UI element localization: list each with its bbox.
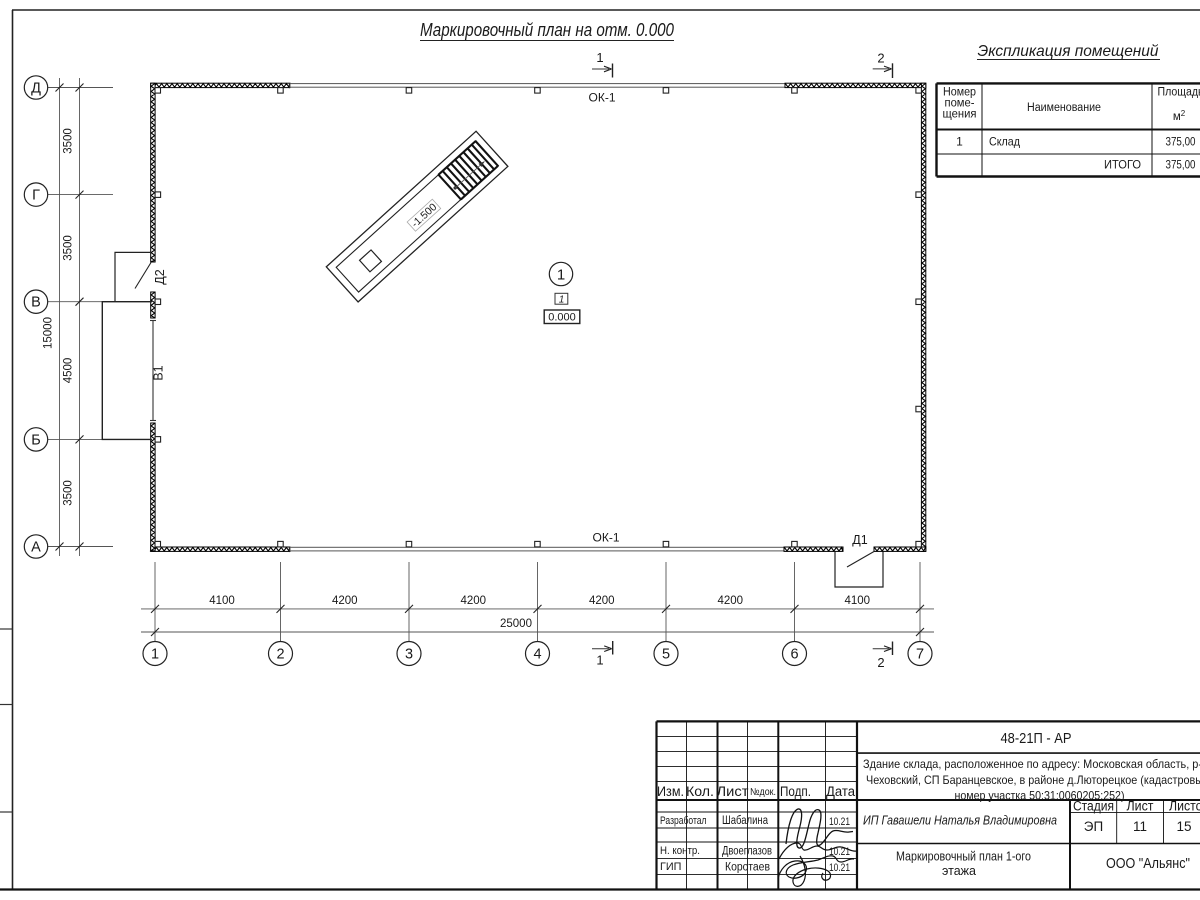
svg-text:1: 1 (956, 135, 963, 149)
svg-text:3500: 3500 (63, 128, 75, 154)
svg-text:7: 7 (916, 647, 924, 663)
svg-text:ОК-1: ОК-1 (589, 91, 616, 105)
svg-text:Б: Б (31, 432, 41, 448)
svg-text:№док.: №док. (750, 787, 776, 798)
svg-text:Д2: Д2 (153, 269, 167, 284)
svg-text:Н. контр.: Н. контр. (660, 845, 700, 857)
svg-text:4: 4 (533, 647, 541, 663)
svg-text:Разработал: Разработал (660, 815, 707, 827)
svg-text:2: 2 (877, 51, 884, 66)
svg-text:5: 5 (662, 647, 670, 663)
svg-text:Маркировочный план на отм. 0.0: Маркировочный план на отм. 0.000 (420, 19, 675, 40)
svg-text:Здание склада, расположенное п: Здание склада, расположенное по адресу: … (863, 757, 1200, 771)
svg-text:Лист: Лист (717, 784, 749, 799)
svg-text:щения: щения (943, 109, 977, 121)
svg-text:375,00: 375,00 (1166, 135, 1196, 149)
svg-text:2: 2 (276, 647, 284, 663)
svg-text:Изм.: Изм. (657, 784, 684, 799)
svg-text:Листов: Листов (1169, 799, 1200, 814)
svg-text:0.000: 0.000 (548, 312, 576, 324)
svg-text:48-21П - АР: 48-21П - АР (1001, 731, 1072, 747)
svg-text:1: 1 (596, 50, 603, 65)
svg-text:Двоеглазов: Двоеглазов (722, 846, 772, 858)
svg-text:Стадия: Стадия (1073, 799, 1114, 814)
svg-text:Склад: Склад (989, 135, 1020, 149)
svg-text:Д1: Д1 (852, 533, 867, 547)
svg-text:В: В (31, 295, 41, 311)
svg-text:10.21: 10.21 (829, 816, 850, 828)
svg-text:В1: В1 (152, 365, 166, 380)
svg-text:Подп.: Подп. (780, 784, 811, 799)
svg-text:10.21: 10.21 (829, 862, 850, 874)
svg-text:4100: 4100 (845, 595, 871, 607)
svg-text:Д: Д (31, 81, 41, 97)
svg-text:Кол.: Кол. (686, 784, 714, 799)
svg-text:Лист: Лист (1127, 799, 1154, 814)
svg-text:4200: 4200 (461, 595, 487, 607)
svg-text:Маркировочный план 1-ого: Маркировочный план 1-ого (896, 850, 1031, 864)
svg-text:Шабалина: Шабалина (722, 815, 768, 827)
svg-text:6: 6 (790, 647, 798, 663)
svg-text:15000: 15000 (43, 317, 55, 349)
svg-text:3500: 3500 (63, 480, 75, 506)
svg-text:1: 1 (151, 647, 159, 663)
svg-text:Площадь: Площадь (1158, 87, 1200, 99)
svg-text:этажа: этажа (942, 864, 976, 878)
svg-text:А: А (31, 540, 41, 556)
svg-text:1: 1 (557, 267, 565, 284)
svg-text:4500: 4500 (63, 358, 75, 384)
svg-text:Чеховский, СП Баранцевское, в: Чеховский, СП Баранцевское, в районе д.Л… (866, 773, 1200, 787)
svg-text:4200: 4200 (332, 595, 358, 607)
svg-text:3500: 3500 (63, 235, 75, 261)
svg-text:Коротаев: Коротаев (725, 862, 770, 874)
svg-text:Г: Г (32, 188, 40, 204)
svg-text:11: 11 (1133, 819, 1147, 834)
svg-text:2: 2 (877, 655, 884, 670)
svg-text:15: 15 (1176, 819, 1191, 834)
svg-text:1: 1 (559, 294, 565, 305)
svg-text:Дата: Дата (826, 784, 855, 799)
svg-text:3: 3 (405, 647, 413, 663)
svg-text:Наименование: Наименование (1027, 102, 1101, 114)
svg-text:ЭП: ЭП (1084, 819, 1103, 834)
svg-text:4100: 4100 (209, 595, 235, 607)
svg-text:ИП Гавашели Наталья Владимиров: ИП Гавашели Наталья Владимировна (863, 814, 1057, 828)
svg-text:ГИП: ГИП (660, 861, 681, 873)
svg-text:375,00: 375,00 (1166, 158, 1196, 172)
svg-text:ООО "Альянс": ООО "Альянс" (1106, 856, 1190, 872)
svg-text:25000: 25000 (500, 618, 532, 630)
svg-text:1: 1 (596, 653, 603, 668)
svg-text:ОК-1: ОК-1 (593, 531, 620, 545)
svg-text:ИТОГО: ИТОГО (1104, 158, 1141, 172)
svg-text:Экспликация помещений: Экспликация помещений (978, 43, 1159, 60)
svg-text:4200: 4200 (589, 595, 615, 607)
svg-text:4200: 4200 (718, 595, 744, 607)
